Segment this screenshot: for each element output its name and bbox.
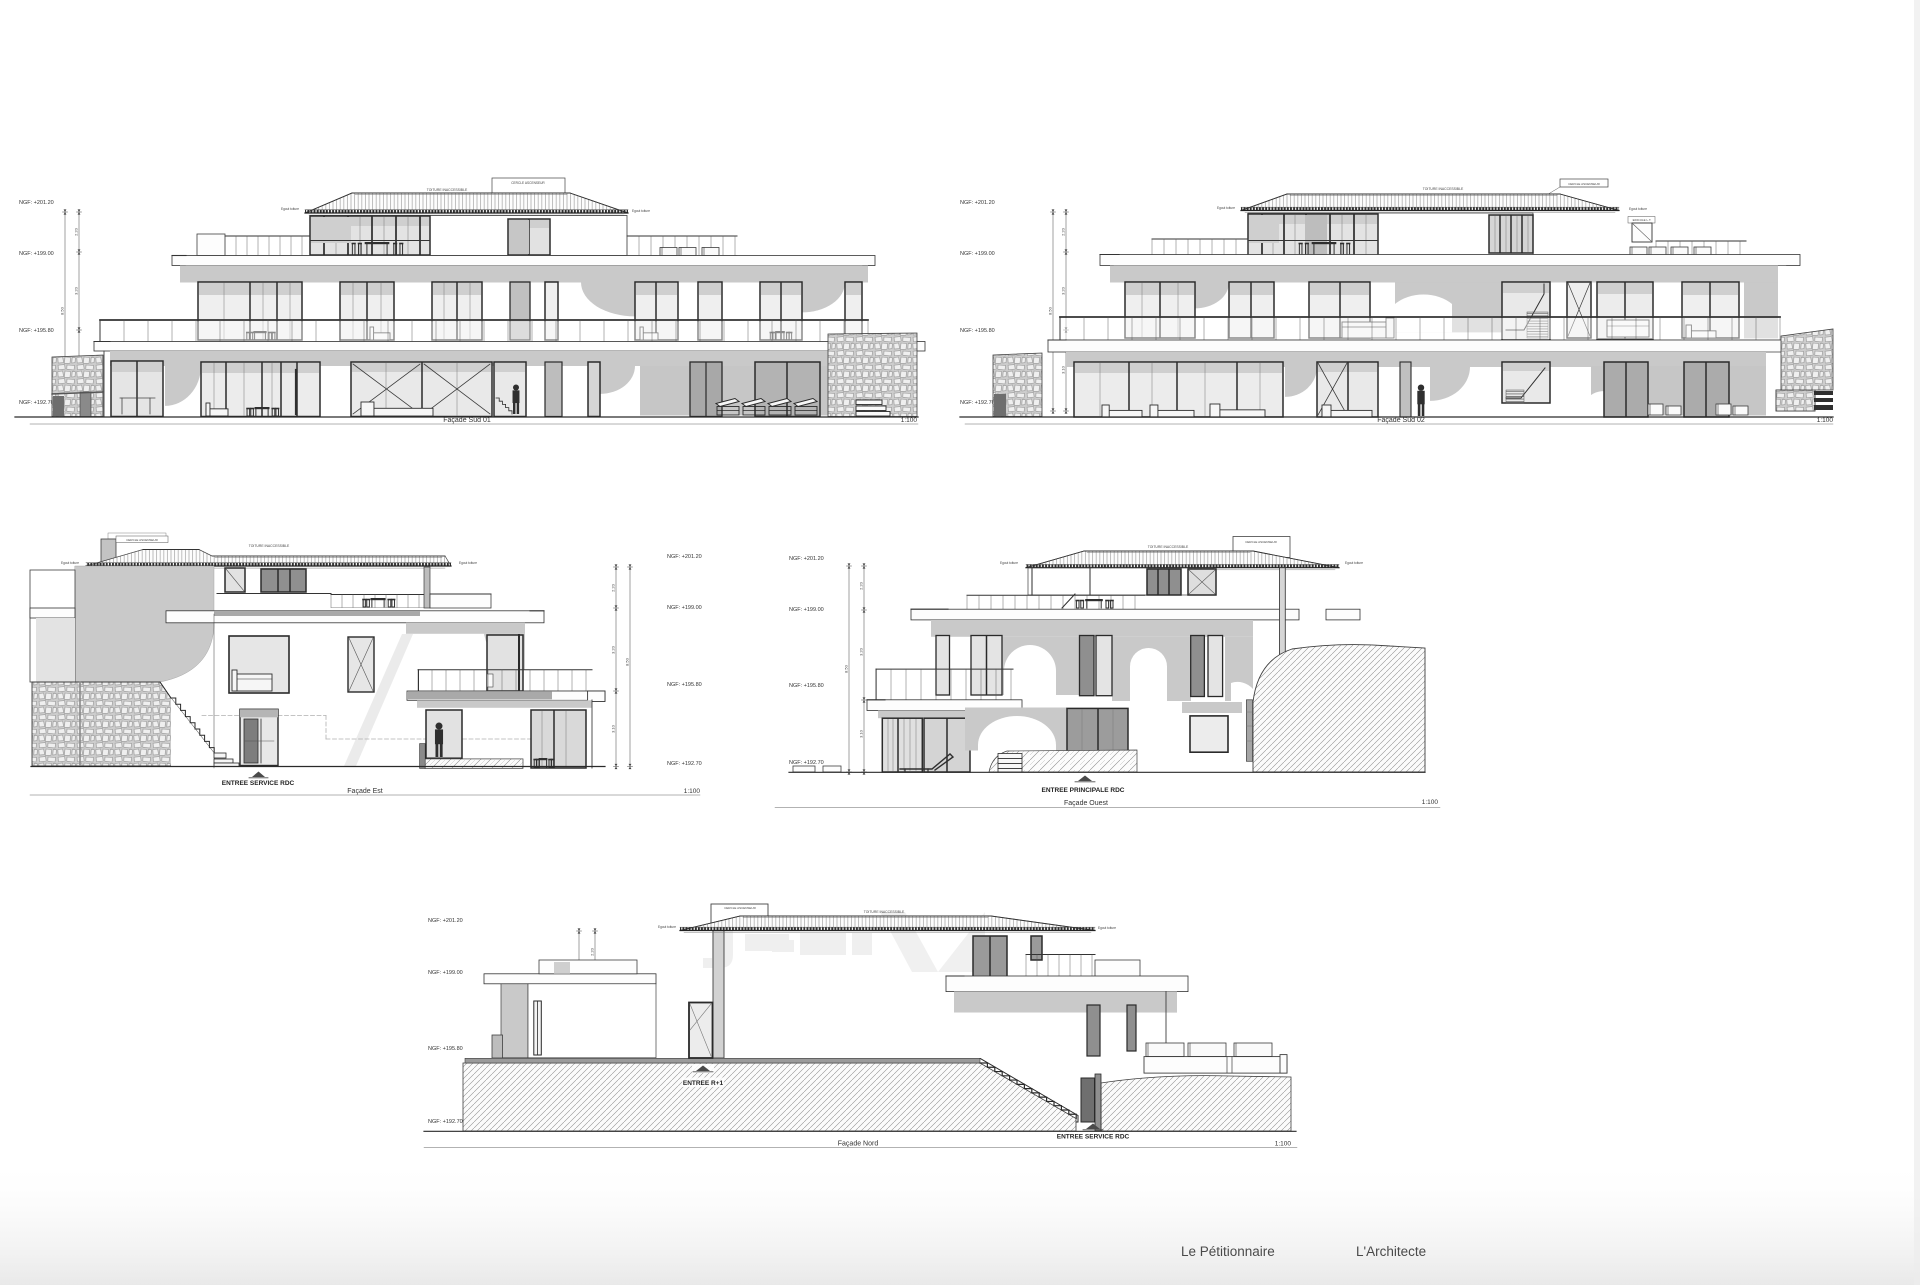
svg-text:NGF: +199.00: NGF: +199.00 <box>789 607 824 613</box>
svg-text:TOITURE INACCESSIBLE: TOITURE INACCESSIBLE <box>1148 545 1189 549</box>
svg-text:TOITURE INACCESSIBLE: TOITURE INACCESSIBLE <box>427 188 468 192</box>
svg-text:1:100: 1:100 <box>1422 799 1439 806</box>
svg-text:NGF: +199.00: NGF: +199.00 <box>960 251 995 257</box>
svg-text:NGF: +195.80: NGF: +195.80 <box>789 683 824 689</box>
svg-text:TOITURE INACCESSIBLE: TOITURE INACCESSIBLE <box>1423 187 1464 191</box>
svg-text:1:100: 1:100 <box>1275 1141 1292 1148</box>
svg-text:ENTREE SERVICE RDC: ENTREE SERVICE RDC <box>1057 1134 1130 1141</box>
svg-text:8.50: 8.50 <box>844 664 849 673</box>
svg-text:2.20: 2.20 <box>611 583 616 592</box>
svg-text:2.20: 2.20 <box>74 227 79 236</box>
svg-text:Egout toiture: Egout toiture <box>1098 926 1116 930</box>
svg-text:NGF: +195.80: NGF: +195.80 <box>428 1046 463 1052</box>
svg-text:8.50: 8.50 <box>60 306 65 315</box>
svg-text:TOITURE INACCESSIBLE: TOITURE INACCESSIBLE <box>249 544 290 548</box>
svg-text:NGF: +192.70: NGF: +192.70 <box>19 400 54 406</box>
svg-text:NGF: +192.70: NGF: +192.70 <box>789 760 824 766</box>
svg-text:ENTREE SERVICE RDC: ENTREE SERVICE RDC <box>222 780 295 787</box>
svg-text:NGF: +199.00: NGF: +199.00 <box>19 251 54 257</box>
svg-text:2.20: 2.20 <box>590 947 595 956</box>
svg-text:Façade Nord: Façade Nord <box>838 1141 879 1148</box>
svg-text:TOITURE INACCESSIBLE: TOITURE INACCESSIBLE <box>864 910 905 914</box>
svg-text:EDICULE L.T.: EDICULE L.T. <box>1633 218 1652 222</box>
svg-text:NGF: +199.00: NGF: +199.00 <box>667 605 702 611</box>
svg-text:Egout toiture: Egout toiture <box>632 209 650 213</box>
svg-text:NGF: +192.70: NGF: +192.70 <box>428 1119 463 1125</box>
svg-text:8.50: 8.50 <box>625 657 630 666</box>
svg-text:NGF: +192.70: NGF: +192.70 <box>960 400 995 406</box>
svg-text:Egout toiture: Egout toiture <box>1345 561 1363 565</box>
svg-text:Façade Ouest: Façade Ouest <box>1064 800 1108 807</box>
svg-text:NGF: +195.80: NGF: +195.80 <box>19 328 54 334</box>
svg-text:3.20: 3.20 <box>611 645 616 654</box>
svg-text:NGF: +201.20: NGF: +201.20 <box>19 200 54 206</box>
svg-text:CERCLE ASCENSEUR: CERCLE ASCENSEUR <box>1568 182 1600 186</box>
svg-text:3.20: 3.20 <box>1061 286 1066 295</box>
svg-text:NGF: +201.20: NGF: +201.20 <box>960 200 995 206</box>
svg-text:Egout toiture: Egout toiture <box>1000 561 1018 565</box>
svg-text:NGF: +195.80: NGF: +195.80 <box>960 328 995 334</box>
svg-text:Le Pétitionnaire: Le Pétitionnaire <box>1181 1244 1275 1259</box>
svg-text:L'Architecte: L'Architecte <box>1356 1244 1426 1259</box>
svg-text:Egout toiture: Egout toiture <box>1217 206 1235 210</box>
svg-text:CERCLE ASCENSEUR: CERCLE ASCENSEUR <box>126 538 158 542</box>
svg-text:Egout toiture: Egout toiture <box>281 207 299 211</box>
svg-text:Façade Est: Façade Est <box>347 788 382 795</box>
svg-text:Egout toiture: Egout toiture <box>1629 207 1647 211</box>
svg-text:ENTREE R+1: ENTREE R+1 <box>683 1080 724 1087</box>
svg-text:NGF: +192.70: NGF: +192.70 <box>667 761 702 767</box>
svg-text:1:100: 1:100 <box>1817 417 1834 424</box>
svg-text:3.10: 3.10 <box>859 729 864 738</box>
svg-text:NGF: +201.20: NGF: +201.20 <box>789 556 824 562</box>
svg-text:3.20: 3.20 <box>74 286 79 295</box>
svg-text:3.10: 3.10 <box>611 724 616 733</box>
svg-text:Façade Sud 02: Façade Sud 02 <box>1377 417 1425 424</box>
svg-text:NGF: +201.20: NGF: +201.20 <box>667 554 702 560</box>
svg-text:3.10: 3.10 <box>1061 365 1066 374</box>
svg-text:NGF: +201.20: NGF: +201.20 <box>428 918 463 924</box>
svg-text:3.20: 3.20 <box>859 647 864 656</box>
svg-text:NGF: +195.80: NGF: +195.80 <box>667 682 702 688</box>
svg-text:2.20: 2.20 <box>1061 227 1066 236</box>
svg-text:1:100: 1:100 <box>901 417 918 424</box>
svg-text:Egout toiture: Egout toiture <box>61 561 79 565</box>
svg-text:2.20: 2.20 <box>859 581 864 590</box>
svg-text:Façade Sud 01: Façade Sud 01 <box>443 417 491 424</box>
svg-text:CERCLE ASCENSEUR: CERCLE ASCENSEUR <box>511 181 545 185</box>
svg-text:ENTREE PRINCIPALE RDC: ENTREE PRINCIPALE RDC <box>1042 787 1125 794</box>
svg-text:NGF: +199.00: NGF: +199.00 <box>428 970 463 976</box>
svg-text:1:100: 1:100 <box>684 788 701 795</box>
svg-text:8.50: 8.50 <box>1048 306 1053 315</box>
svg-text:CERCLE ASCENSEUR: CERCLE ASCENSEUR <box>724 906 756 910</box>
svg-text:Egout toiture: Egout toiture <box>459 561 477 565</box>
svg-text:Egout toiture: Egout toiture <box>658 925 676 929</box>
svg-text:CERCLE ASCENSEUR: CERCLE ASCENSEUR <box>1245 540 1277 544</box>
